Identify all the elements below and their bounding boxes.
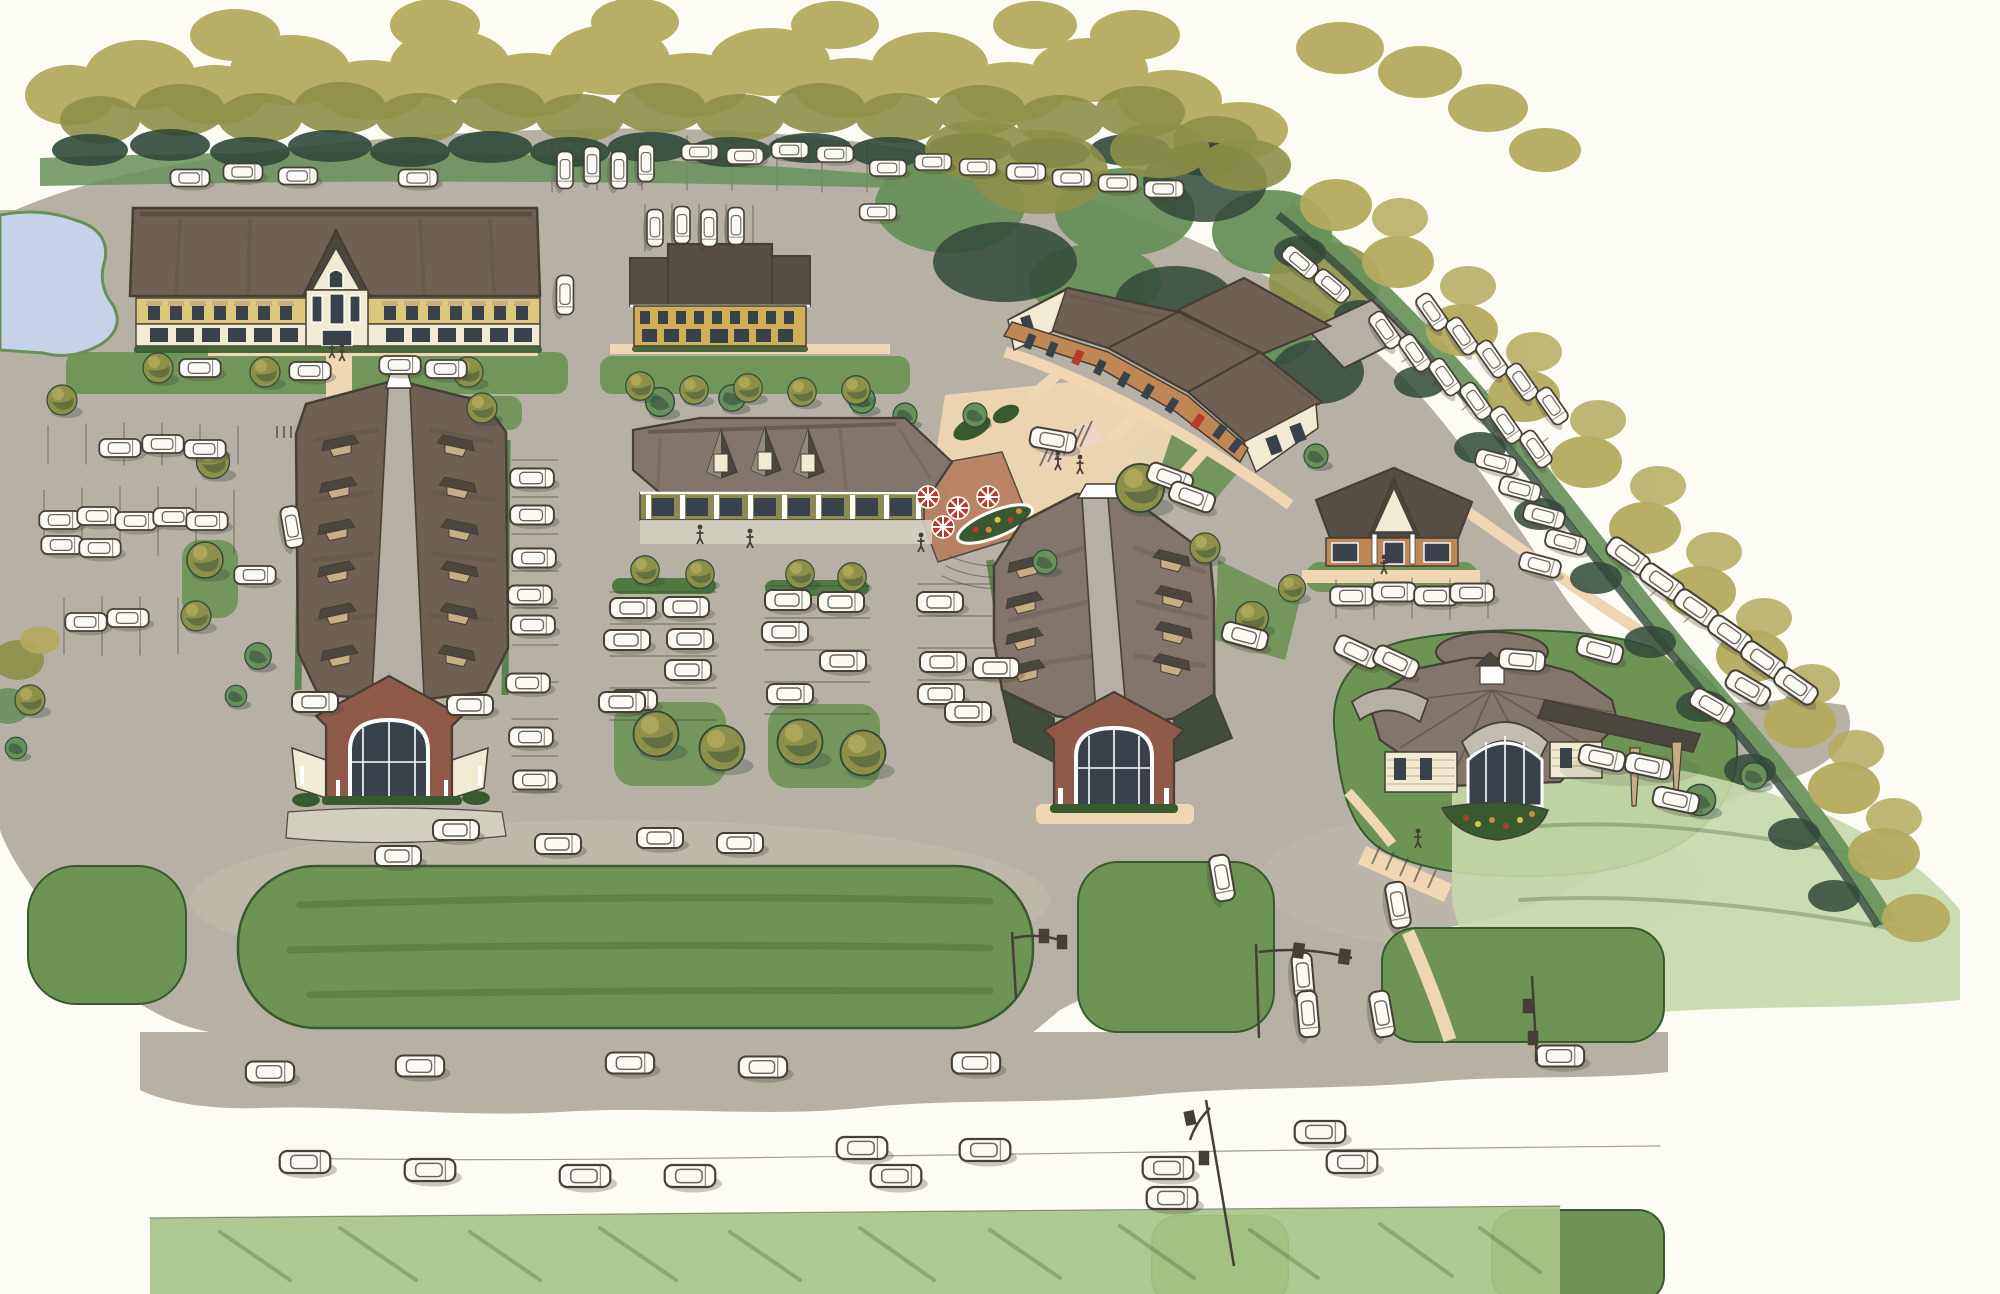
car xyxy=(405,1159,462,1187)
car xyxy=(762,622,814,647)
rendering-canvas: Aerial marker-and-watercolor architectur… xyxy=(0,0,2000,1294)
car xyxy=(665,1165,722,1193)
building-office-north-center xyxy=(630,244,810,352)
car xyxy=(289,362,336,385)
car xyxy=(535,834,587,859)
median-west-patch xyxy=(28,866,186,1004)
car xyxy=(433,820,485,845)
car xyxy=(665,660,717,685)
car xyxy=(447,695,499,720)
car xyxy=(772,142,814,162)
car xyxy=(560,1165,617,1193)
car xyxy=(818,592,870,617)
car xyxy=(599,692,651,717)
car xyxy=(637,828,689,853)
car xyxy=(604,630,656,655)
car xyxy=(973,658,1025,683)
car xyxy=(917,592,969,617)
car xyxy=(170,170,214,191)
car xyxy=(223,164,267,185)
car xyxy=(717,833,769,858)
car xyxy=(697,210,717,252)
parking-retail-west-strip xyxy=(506,469,562,795)
car xyxy=(553,152,573,194)
car xyxy=(670,207,690,249)
car xyxy=(107,609,154,632)
car xyxy=(379,356,426,379)
corner-lawn-nw xyxy=(1078,862,1274,1032)
retail-east-shrubs xyxy=(1050,804,1178,813)
car xyxy=(1006,164,1050,185)
car xyxy=(396,1056,451,1082)
car xyxy=(960,159,1002,179)
car xyxy=(511,616,560,640)
car xyxy=(837,1137,894,1165)
car xyxy=(186,512,233,535)
office-nc-shrubs xyxy=(632,346,808,352)
car xyxy=(512,549,561,573)
car xyxy=(142,435,189,458)
retail-west-shrubs xyxy=(322,796,462,805)
car xyxy=(375,846,427,871)
car xyxy=(870,160,912,180)
car xyxy=(506,674,555,698)
car xyxy=(99,439,146,462)
car xyxy=(1450,584,1499,608)
car xyxy=(246,1062,301,1088)
car xyxy=(682,144,724,164)
car xyxy=(508,586,557,610)
car xyxy=(667,629,719,654)
car xyxy=(817,146,859,166)
car xyxy=(767,684,819,709)
car xyxy=(513,771,562,795)
car xyxy=(65,613,112,636)
office-nw-shrubs xyxy=(134,346,542,353)
car xyxy=(739,1057,794,1083)
building-retail-long-west xyxy=(286,374,508,843)
building-office-northwest xyxy=(130,208,542,353)
car xyxy=(1536,1046,1591,1072)
site-rendering: Aerial marker-and-watercolor architectur… xyxy=(0,0,2000,1294)
car xyxy=(643,210,663,252)
car xyxy=(960,1139,1017,1167)
car xyxy=(952,1053,1007,1079)
car xyxy=(860,204,902,224)
car xyxy=(663,597,715,622)
car xyxy=(1327,1151,1384,1179)
walk-pavilion-front xyxy=(1302,570,1480,583)
car xyxy=(184,440,231,463)
car xyxy=(610,598,662,623)
car xyxy=(580,147,600,189)
car xyxy=(398,170,442,191)
car xyxy=(234,566,281,589)
car xyxy=(1144,181,1188,202)
car xyxy=(278,168,322,189)
car xyxy=(1098,175,1142,196)
car xyxy=(765,590,817,615)
car xyxy=(1052,170,1096,191)
car xyxy=(724,208,744,250)
car xyxy=(510,469,559,493)
car xyxy=(552,275,573,319)
car xyxy=(1143,1157,1200,1185)
car xyxy=(79,539,126,562)
car xyxy=(915,154,957,174)
retail-center-walk xyxy=(640,520,932,544)
car xyxy=(1295,1121,1352,1149)
car xyxy=(1147,1187,1204,1215)
car xyxy=(871,1165,928,1193)
car xyxy=(510,506,559,530)
car xyxy=(292,692,344,717)
pond xyxy=(0,212,117,356)
office-nc-center-roof xyxy=(668,244,772,306)
car xyxy=(920,652,972,677)
car xyxy=(607,152,627,194)
car xyxy=(634,145,654,187)
car xyxy=(280,1151,337,1179)
car xyxy=(179,359,226,382)
car xyxy=(945,702,997,727)
car xyxy=(606,1053,661,1079)
car xyxy=(425,360,472,383)
lawn-south-pencil-band xyxy=(150,1206,1560,1294)
car xyxy=(820,651,872,676)
car xyxy=(509,728,558,752)
restaurant-arch-front xyxy=(1462,722,1548,806)
car xyxy=(727,148,769,168)
